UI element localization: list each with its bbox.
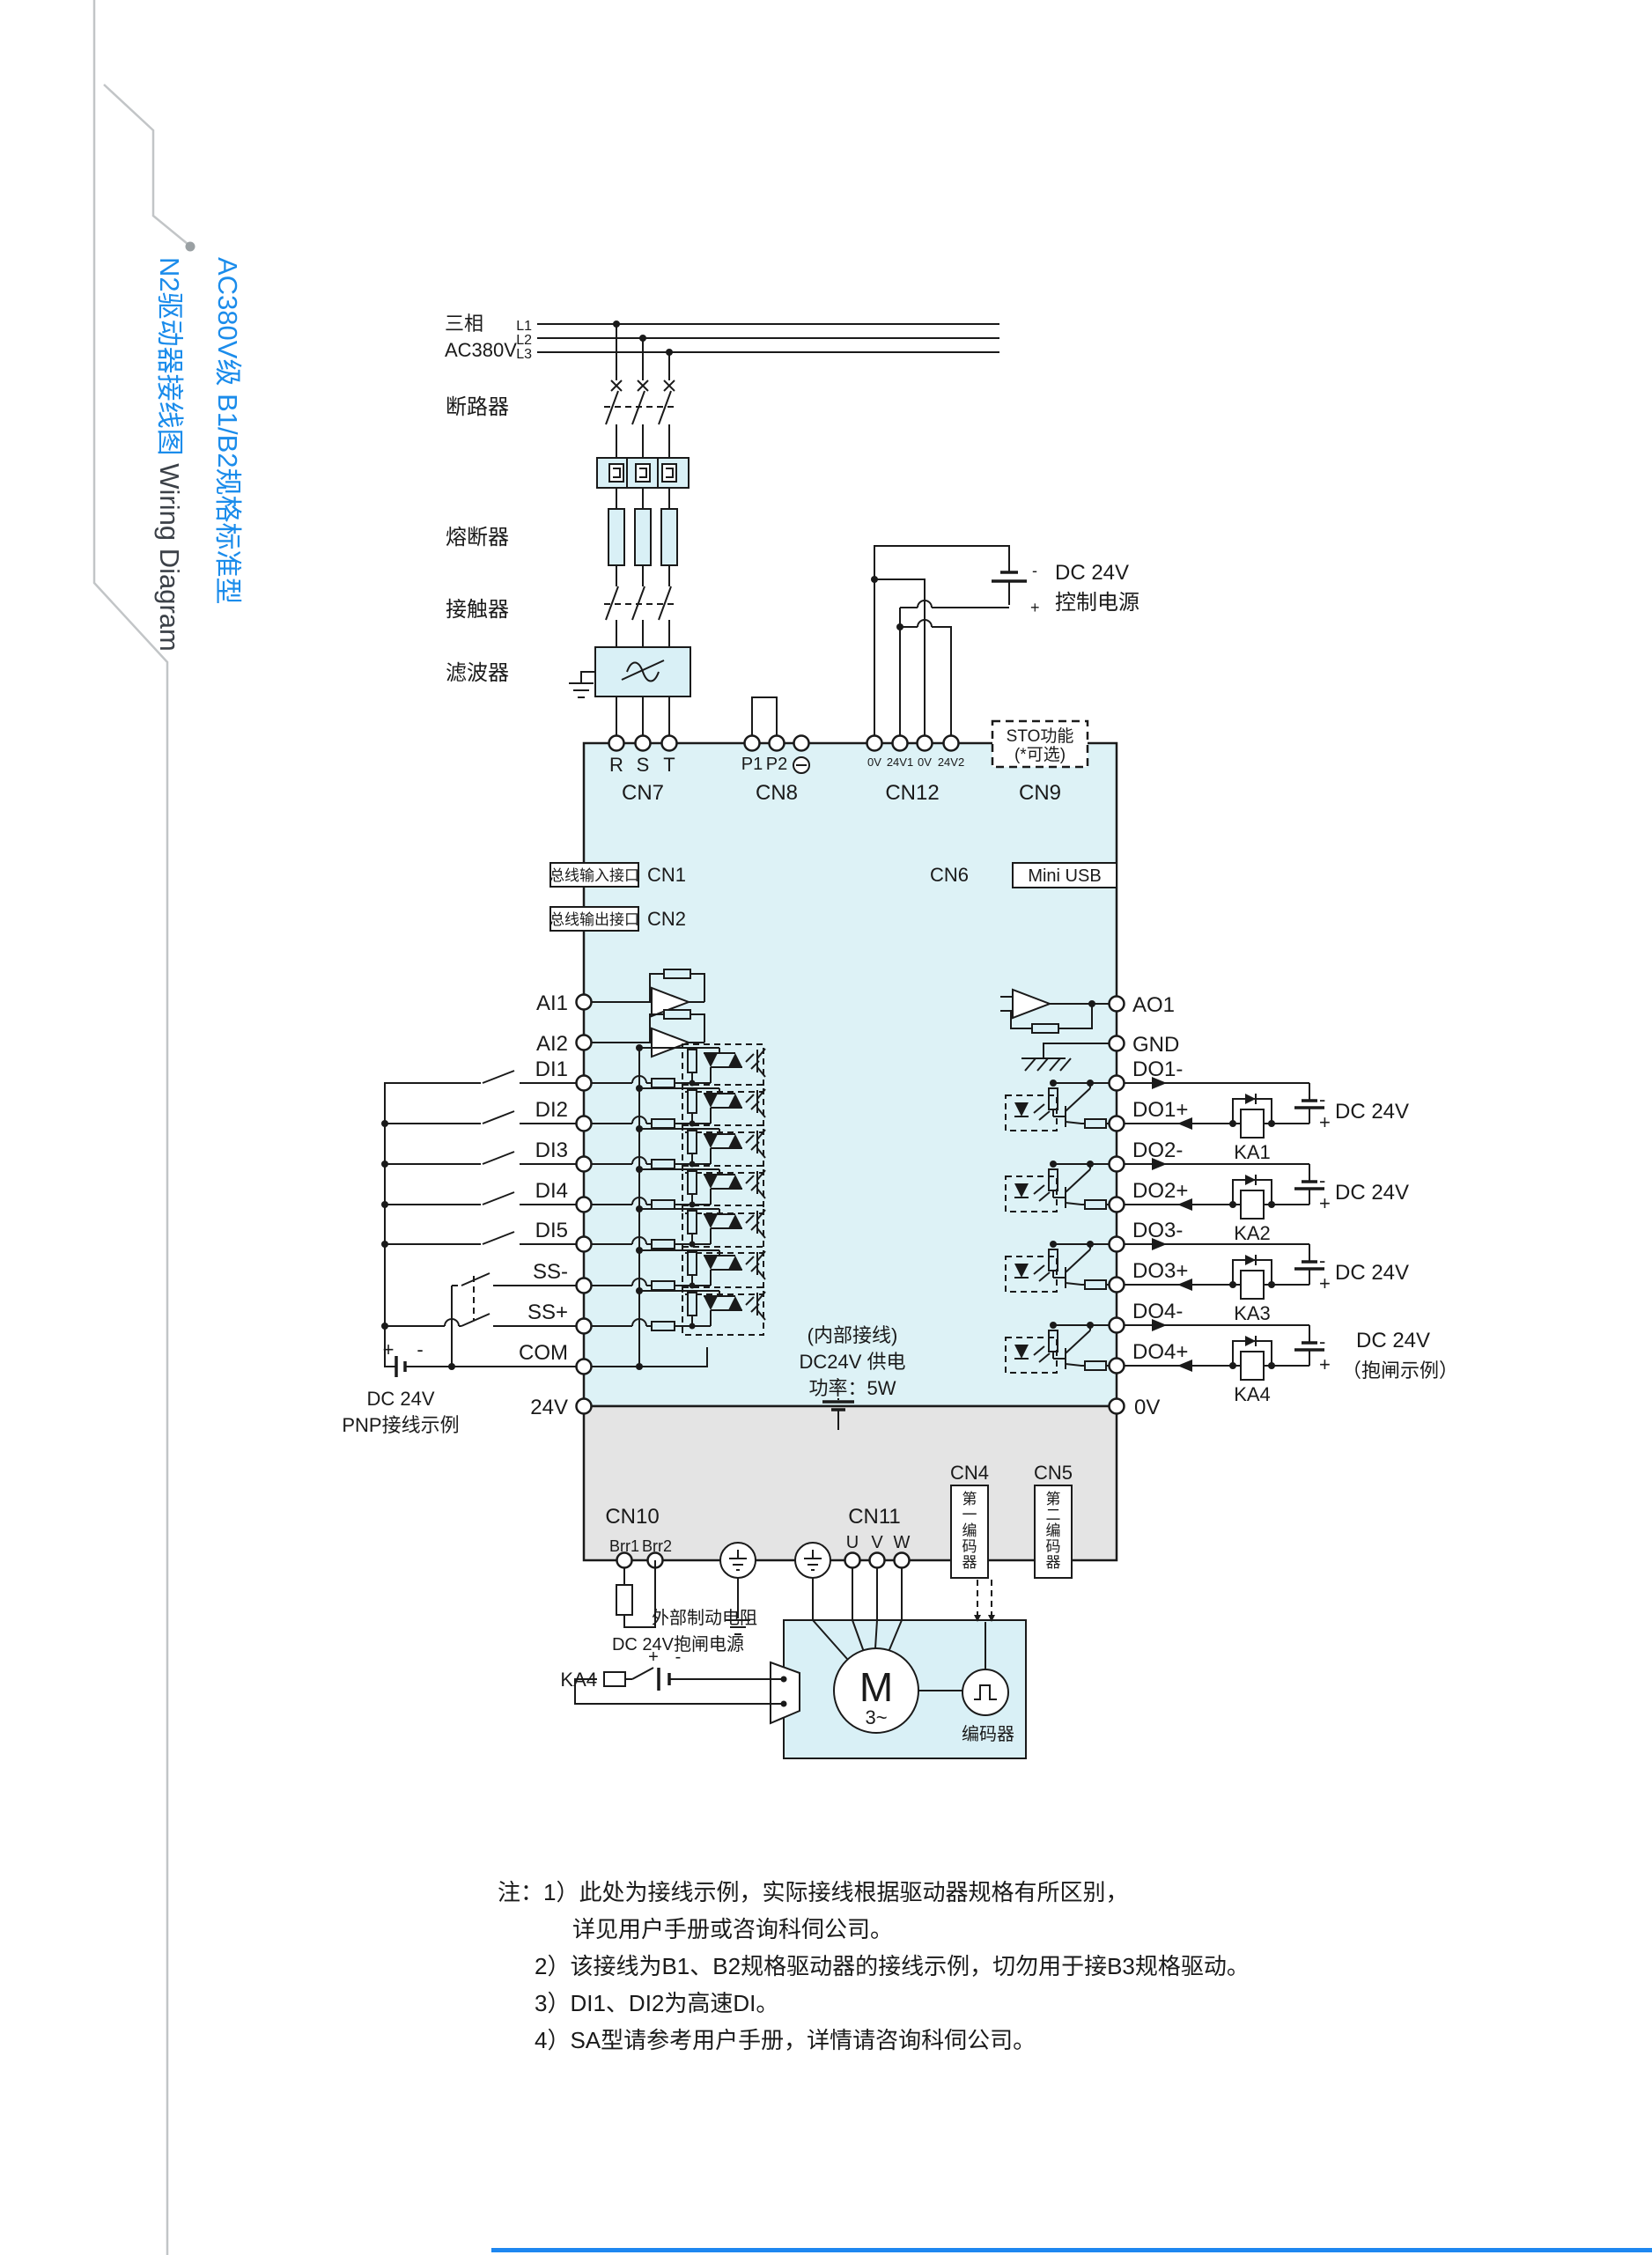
cn11-label: CN11 bbox=[848, 1505, 901, 1529]
bottom-accent-bar bbox=[491, 2248, 1652, 2252]
sto-line2: (*可选) bbox=[1014, 745, 1066, 764]
border-accent-dot bbox=[186, 242, 195, 252]
pnp-minus: - bbox=[417, 1338, 423, 1360]
terminal-di1: DI1 bbox=[535, 1057, 568, 1081]
filter-label: 滤波器 bbox=[446, 661, 509, 685]
encoder1-port-label: 第一编码器 bbox=[962, 1491, 977, 1571]
terminal-di2: DI2 bbox=[535, 1098, 568, 1122]
motor-phases-label: 3~ bbox=[865, 1706, 887, 1728]
cn5-label: CN5 bbox=[1034, 1462, 1073, 1484]
motor-assembly: M 3~ 编码器 bbox=[575, 1567, 1026, 1758]
terminal-do3-plus: DO3+ bbox=[1132, 1259, 1188, 1283]
pnp-plus: + bbox=[383, 1338, 395, 1360]
phase-lines bbox=[537, 324, 999, 352]
pe-terminal-1-icon bbox=[720, 1543, 756, 1578]
motor-m-label: M bbox=[859, 1664, 893, 1710]
do2-dc24v-label: DC 24V bbox=[1335, 1181, 1409, 1205]
relay-ka2-label: KA2 bbox=[1234, 1222, 1271, 1244]
cn1-label: CN1 bbox=[647, 864, 686, 886]
do4-dc24v-label: DC 24V bbox=[1356, 1329, 1430, 1352]
terminal-ai1: AI1 bbox=[536, 991, 568, 1015]
ext-brake-resistor-label: 外部制动电阻 bbox=[652, 1608, 757, 1628]
note-line-4: 3）DI1、DI2为高速DI。 bbox=[535, 1990, 778, 2016]
cn8-label: CN8 bbox=[756, 781, 798, 805]
relay-ka1-label: KA1 bbox=[1234, 1141, 1271, 1163]
terminal-di3: DI3 bbox=[535, 1139, 568, 1162]
do1-plus-sign: + bbox=[1319, 1111, 1331, 1133]
fuse-label: 熔断器 bbox=[446, 526, 509, 549]
control-power-name: DC 24V bbox=[1055, 561, 1129, 585]
terminal-do2-plus: DO2+ bbox=[1132, 1179, 1188, 1203]
brake-power-label: DC 24V抱闸电源 bbox=[612, 1634, 744, 1654]
do2-plus-sign: + bbox=[1319, 1192, 1331, 1214]
do3-dc24v-label: DC 24V bbox=[1335, 1261, 1409, 1285]
do1-minus-sign: - bbox=[1319, 1088, 1325, 1110]
terminal-com: COM bbox=[519, 1341, 568, 1365]
terminal-ai2: AI2 bbox=[536, 1032, 568, 1056]
terminal-do1-minus: DO1- bbox=[1132, 1057, 1183, 1081]
wiring-diagram-page: AC380V级 B1/B2规格标准型 N2驱动器接线图 Wiring Diagr… bbox=[0, 0, 1652, 2255]
internal-supply-line1: (内部接线) bbox=[808, 1324, 898, 1346]
brake-power-circuit: KA4 + - DC 24V抱闸电源 bbox=[560, 1634, 744, 1691]
l1-label: L1 bbox=[516, 319, 532, 334]
do1-dc24v-label: DC 24V bbox=[1335, 1100, 1409, 1124]
internal-supply-line3: 功率：5W bbox=[808, 1377, 896, 1399]
cn7-label: CN7 bbox=[622, 781, 664, 805]
terminal-di4: DI4 bbox=[535, 1179, 568, 1203]
mini-usb-label: Mini USB bbox=[1028, 866, 1101, 886]
do4-plus-sign: + bbox=[1319, 1353, 1331, 1375]
terminal-w: W bbox=[894, 1533, 911, 1552]
wiring-diagram: AC380V级 B1/B2规格标准型 N2驱动器接线图 Wiring Diagr… bbox=[0, 0, 1652, 2255]
l3-label: L3 bbox=[516, 347, 532, 362]
do3-plus-sign: + bbox=[1319, 1272, 1331, 1294]
contactor-label: 接触器 bbox=[446, 598, 509, 622]
terminal-do3-minus: DO3- bbox=[1132, 1219, 1183, 1242]
terminal-24v: 24V bbox=[530, 1396, 568, 1419]
terminal-r: R bbox=[609, 754, 623, 776]
terminal-gnd: GND bbox=[1132, 1033, 1179, 1057]
terminal-24v2: 24V2 bbox=[938, 755, 964, 769]
encoder-circle bbox=[962, 1669, 1008, 1715]
terminal-p2: P2 bbox=[766, 755, 787, 774]
relay-ka3-label: KA3 bbox=[1234, 1302, 1271, 1324]
control-power-circuit: - + DC 24V 控制电源 bbox=[871, 546, 1139, 735]
terminal-di5: DI5 bbox=[535, 1219, 568, 1242]
note-line-3: 2）该接线为B1、B2规格驱动器的接线示例，切勿用于接B3规格驱动。 bbox=[535, 1953, 1250, 1979]
do3-minus-sign: - bbox=[1319, 1249, 1325, 1271]
encoder-label: 编码器 bbox=[962, 1724, 1014, 1744]
brake-ka4-label: KA4 bbox=[560, 1669, 597, 1691]
note-line-5: 4）SA型请参考用户手册，详情请咨询科伺公司。 bbox=[535, 2027, 1036, 2053]
terminal-do4-plus: DO4+ bbox=[1132, 1340, 1188, 1364]
bus-out-label: 总线输出接口 bbox=[549, 911, 639, 928]
internal-supply-line2: DC24V 供电 bbox=[799, 1351, 905, 1373]
page-title-line1: AC380V级 B1/B2规格标准型 bbox=[212, 257, 243, 605]
l2-label: L2 bbox=[516, 333, 532, 348]
fuse-icon bbox=[608, 488, 677, 586]
do4-brake-example-label: （抱闸示例） bbox=[1342, 1360, 1458, 1382]
contactor-icon bbox=[604, 586, 676, 647]
terminal-u: U bbox=[846, 1533, 859, 1552]
phase-label: 三相 bbox=[445, 313, 483, 335]
cn10-label: CN10 bbox=[605, 1505, 659, 1529]
cn4-label: CN4 bbox=[950, 1462, 989, 1484]
cn12-label: CN12 bbox=[885, 781, 939, 805]
pnp-source-line2: PNP接线示例 bbox=[342, 1414, 459, 1436]
pnp-source-line1: DC 24V bbox=[366, 1388, 434, 1410]
do4-minus-sign: - bbox=[1319, 1330, 1325, 1352]
terminal-s: S bbox=[637, 754, 650, 776]
terminal-do1-plus: DO1+ bbox=[1132, 1098, 1188, 1122]
bus-in-label: 总线输入接口 bbox=[549, 867, 639, 884]
terminal-do2-minus: DO2- bbox=[1132, 1139, 1183, 1162]
cn9-label: CN9 bbox=[1019, 781, 1061, 805]
breaker-label: 断路器 bbox=[446, 395, 509, 419]
control-power-plus: + bbox=[1030, 599, 1040, 616]
border-accent-line bbox=[104, 85, 188, 244]
terminal-t: T bbox=[663, 754, 675, 776]
ka4-contact-icon bbox=[604, 1672, 625, 1686]
notes: 注：1）此处为接线示例，实际接线根据驱动器规格有所区别， 详见用户手册或咨询科伺… bbox=[498, 1879, 1250, 2053]
breaker-icon bbox=[597, 380, 689, 488]
terminal-p1: P1 bbox=[741, 755, 763, 774]
terminal-24v1: 24V1 bbox=[887, 755, 913, 769]
terminal-ss-plus: SS+ bbox=[527, 1301, 568, 1324]
drive-control-section bbox=[584, 743, 1117, 1406]
sidebar-title: AC380V级 B1/B2规格标准型 N2驱动器接线图 Wiring Diagr… bbox=[154, 257, 243, 652]
control-power-battery-icon bbox=[992, 572, 1027, 581]
filter-ground-icon bbox=[569, 683, 594, 697]
do2-minus-sign: - bbox=[1319, 1169, 1325, 1191]
power-chain: 断路器 熔断器 接触器 滤波器 bbox=[446, 380, 690, 735]
terminal-0v-1: 0V bbox=[867, 755, 881, 769]
control-power-minus: - bbox=[1032, 562, 1037, 579]
terminal-0v: 0V bbox=[1134, 1396, 1160, 1419]
control-power-name2: 控制电源 bbox=[1055, 591, 1139, 615]
relay-ka4-label: KA4 bbox=[1234, 1383, 1271, 1405]
three-phase-supply: 三相 AC380V L1 L2 L3 bbox=[445, 313, 999, 380]
terminal-do4-minus: DO4- bbox=[1132, 1300, 1183, 1323]
sto-line1: STO功能 bbox=[1007, 726, 1074, 746]
terminal-ss-minus: SS- bbox=[533, 1260, 568, 1284]
terminal-0v-2: 0V bbox=[918, 755, 932, 769]
cn6-label: CN6 bbox=[930, 864, 969, 886]
pe-terminal-2-icon bbox=[795, 1543, 830, 1578]
voltage-label: AC380V bbox=[445, 339, 517, 361]
terminal-ao1: AO1 bbox=[1132, 993, 1175, 1017]
filter-icon bbox=[569, 647, 690, 735]
encoder2-port-label: 第二编码器 bbox=[1046, 1491, 1061, 1571]
note-line-2: 详见用户手册或咨询科伺公司。 bbox=[572, 1916, 893, 1942]
page-title-line2: N2驱动器接线图 Wiring Diagram bbox=[154, 257, 185, 652]
cn2-label: CN2 bbox=[647, 908, 686, 930]
note-line-1: 注：1）此处为接线示例，实际接线根据驱动器规格有所区别， bbox=[498, 1879, 1128, 1905]
terminal-v: V bbox=[871, 1533, 883, 1552]
minus-terminal-icon bbox=[793, 757, 809, 773]
